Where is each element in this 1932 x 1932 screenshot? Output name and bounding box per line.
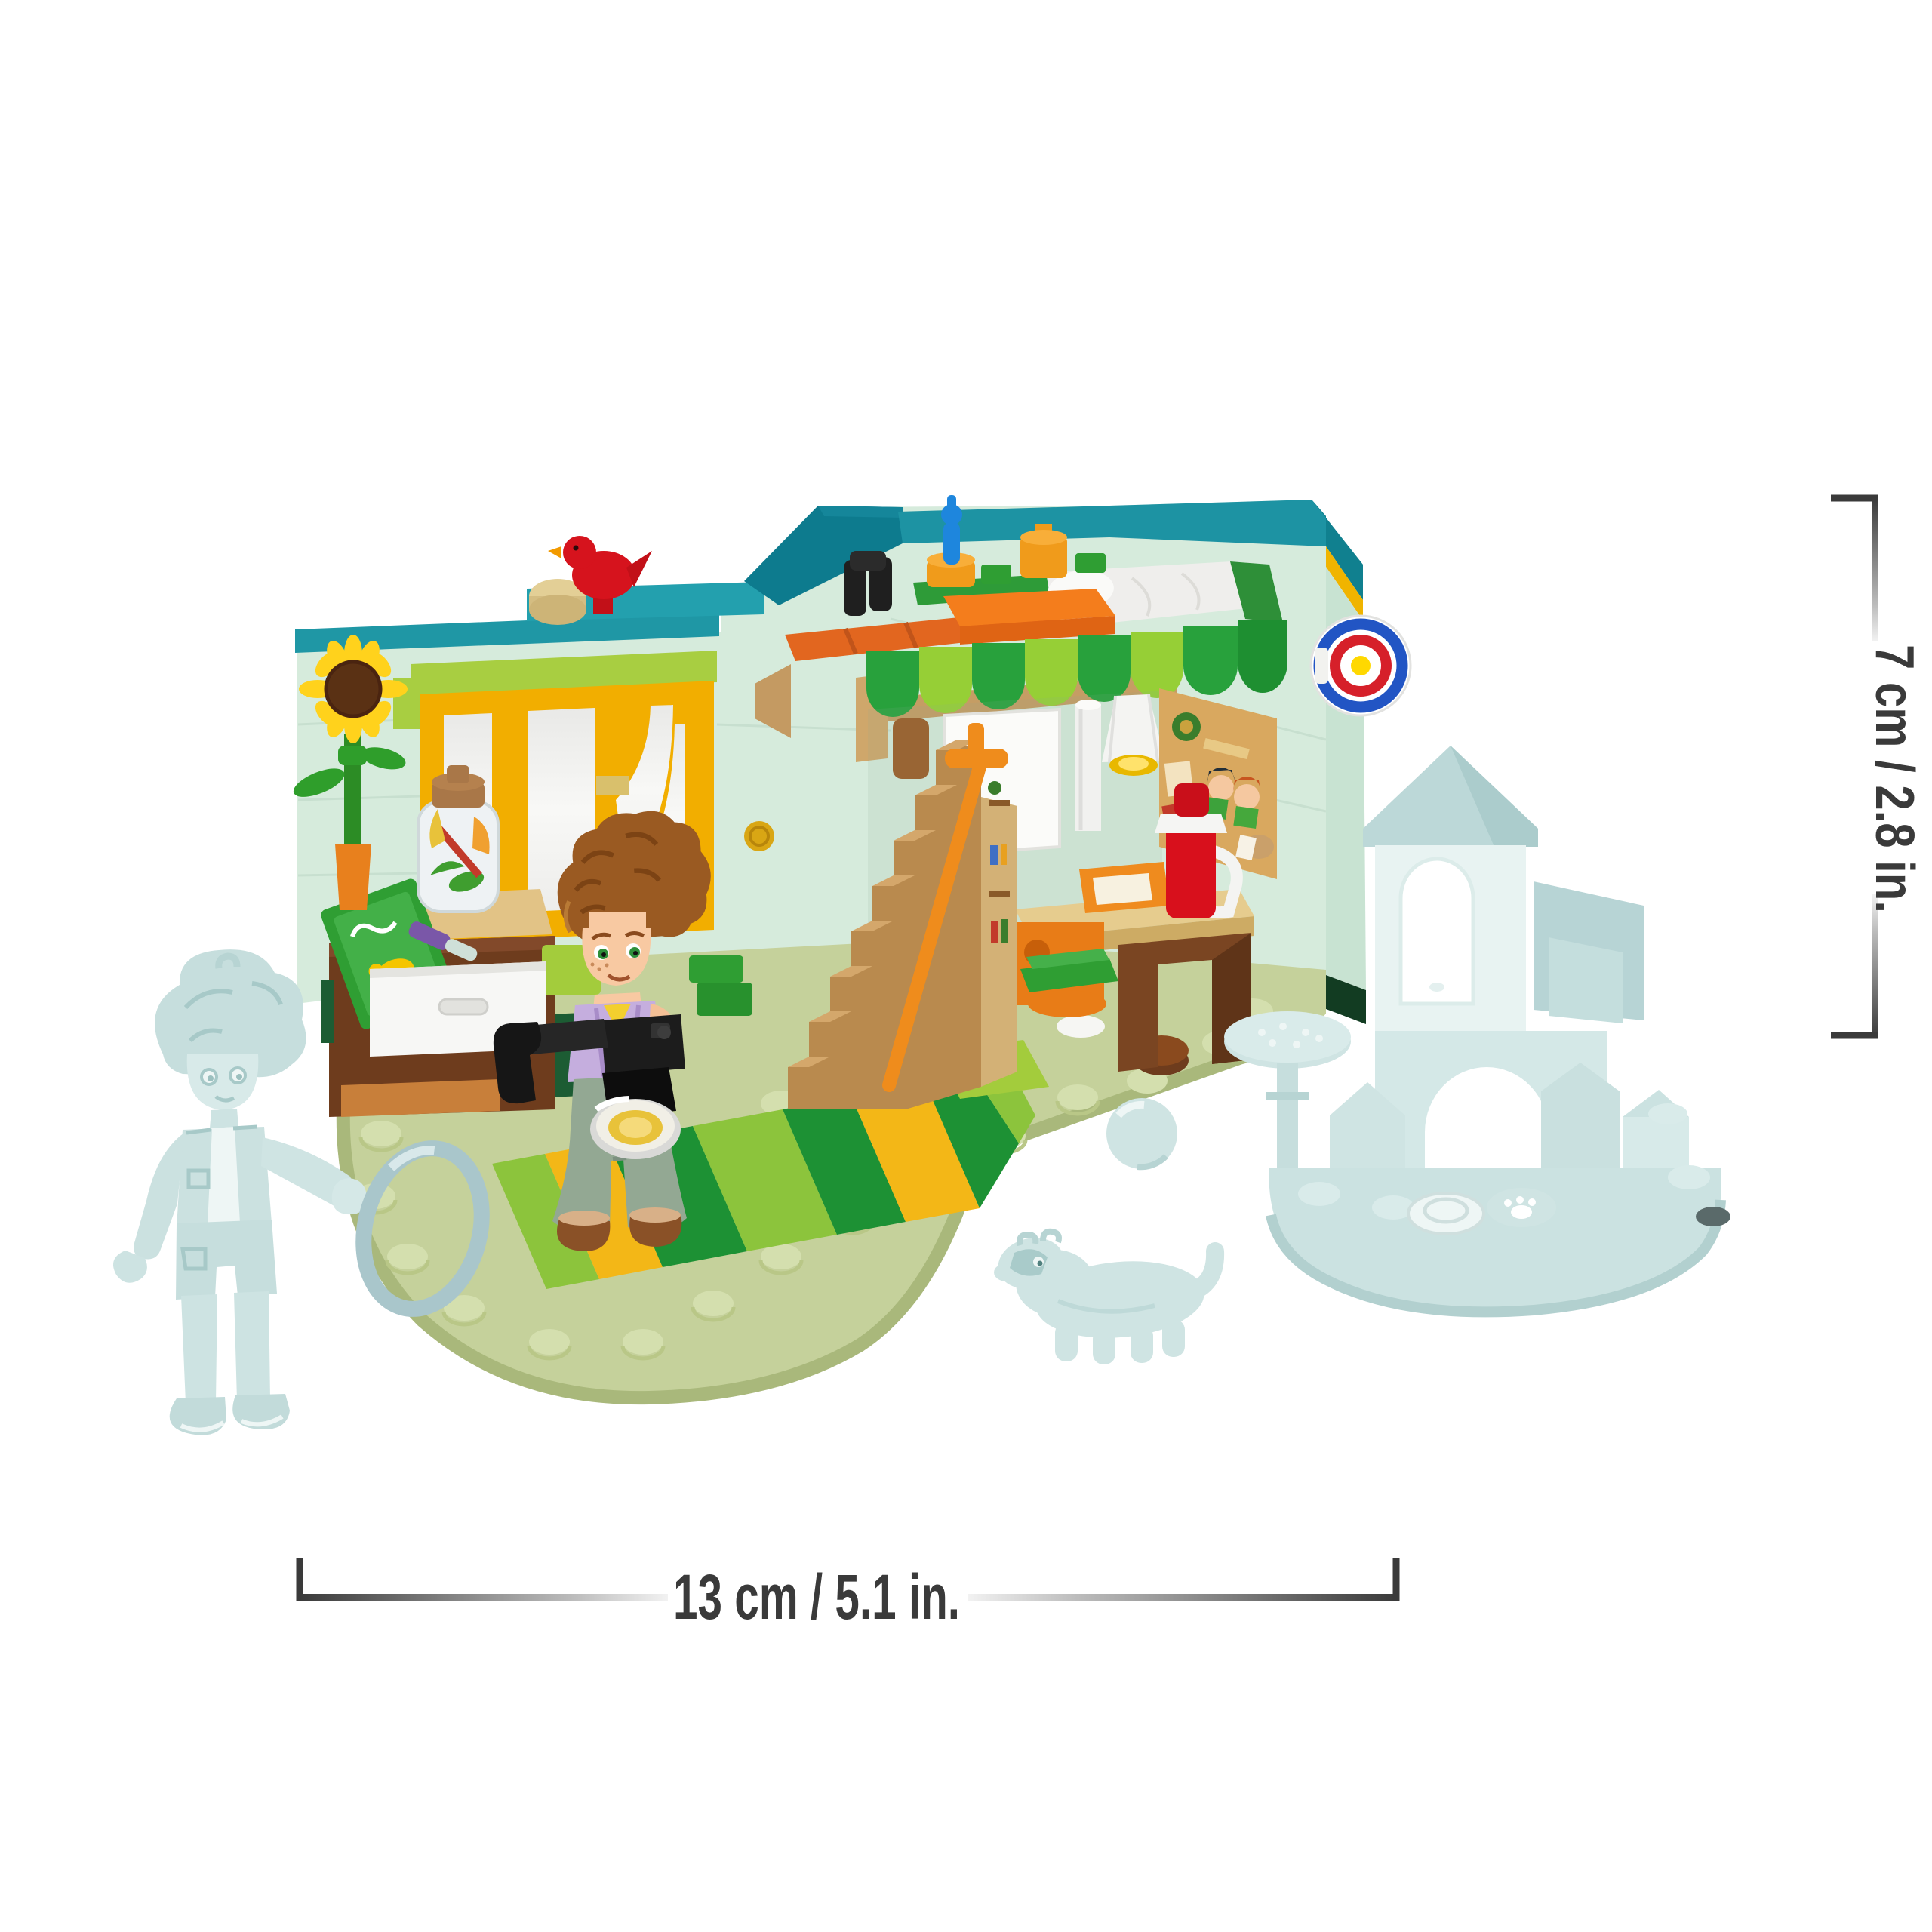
svg-text:7 cm / 2.8 in.: 7 cm / 2.8 in. (1864, 645, 1924, 913)
svg-text:13 cm / 5.1 in.: 13 cm / 5.1 in. (673, 1561, 960, 1632)
